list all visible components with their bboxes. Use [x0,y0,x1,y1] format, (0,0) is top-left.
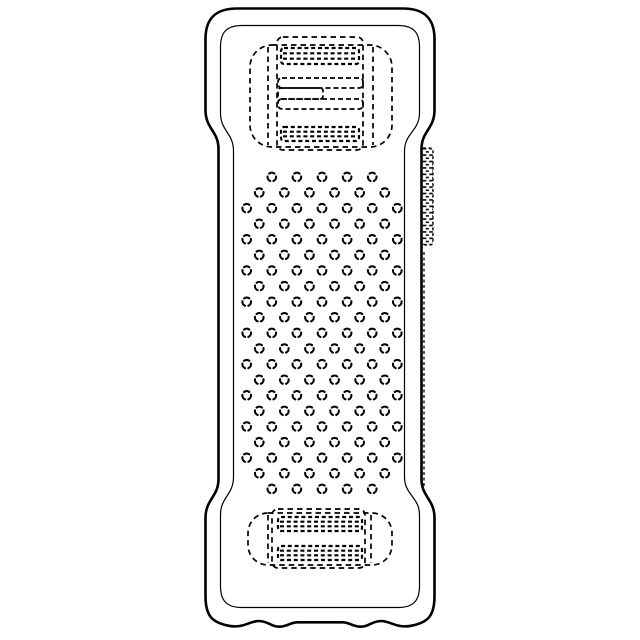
body-outline [206,9,435,627]
patent-figure-page [0,0,640,640]
patent-drawing [0,0,640,640]
